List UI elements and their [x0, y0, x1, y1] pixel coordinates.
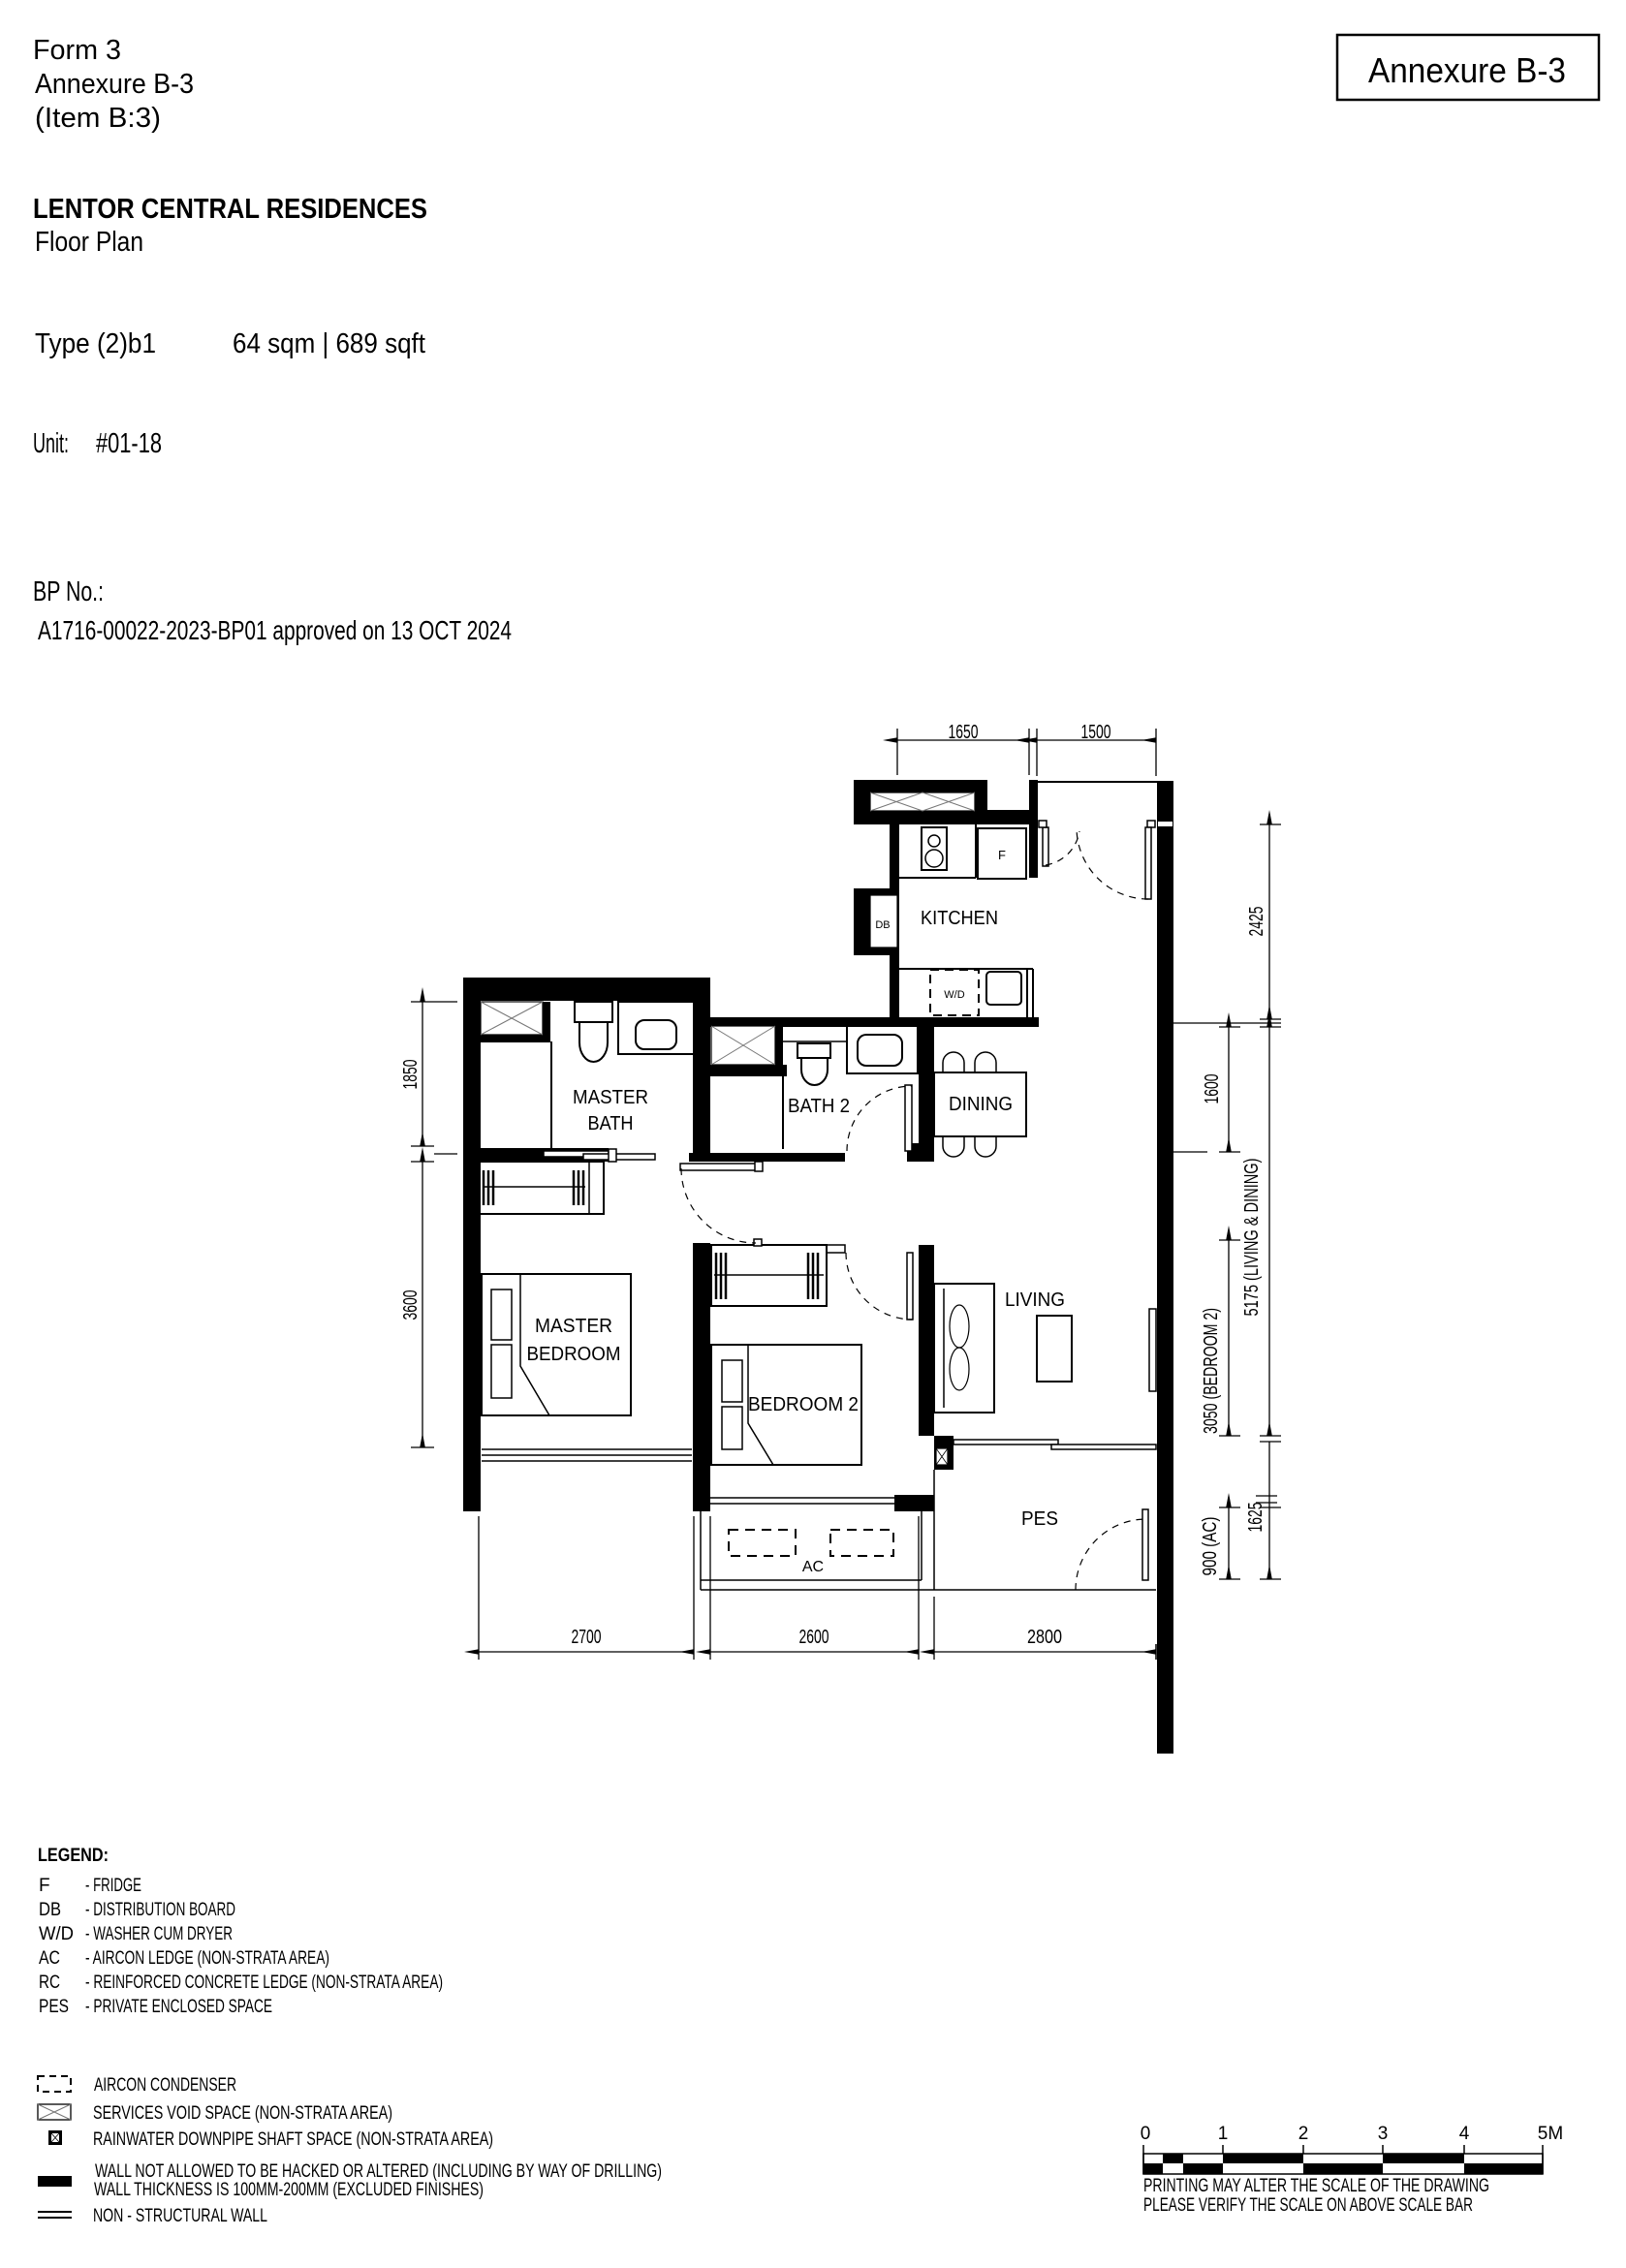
svg-text:MASTER: MASTER	[573, 1087, 648, 1108]
svg-text:2700: 2700	[572, 1627, 602, 1648]
svg-text:900 (AC): 900 (AC)	[1200, 1517, 1221, 1576]
svg-text:LIVING: LIVING	[1005, 1289, 1065, 1311]
svg-text:DINING: DINING	[949, 1094, 1013, 1115]
svg-text:WALL NOT ALLOWED TO BE HACKED: WALL NOT ALLOWED TO BE HACKED OR ALTERED…	[95, 2161, 662, 2182]
svg-text:5M: 5M	[1538, 2124, 1563, 2144]
svg-text:0: 0	[1141, 2124, 1151, 2144]
svg-text:- FRIDGE: - FRIDGE	[85, 1876, 141, 1896]
svg-text:- DISTRIBUTION BOARD: - DISTRIBUTION BOARD	[85, 1900, 235, 1920]
svg-text:(Item B:3): (Item B:3)	[35, 103, 161, 134]
svg-text:1650: 1650	[949, 722, 979, 743]
svg-text:PES: PES	[39, 1997, 69, 2017]
svg-text:WALL THICKNESS IS 100MM-200MM: WALL THICKNESS IS 100MM-200MM (EXCLUDED …	[94, 2180, 484, 2200]
svg-text:Type (2)b1: Type (2)b1	[35, 328, 156, 359]
svg-text:LEGEND:: LEGEND:	[38, 1846, 109, 1866]
svg-text:KITCHEN: KITCHEN	[921, 908, 998, 929]
svg-text:- REINFORCED CONCRETE LEDGE (N: - REINFORCED CONCRETE LEDGE (NON-STRATA …	[85, 1973, 443, 1993]
svg-text:- AIRCON LEDGE (NON-STRATA ARE: - AIRCON LEDGE (NON-STRATA AREA)	[85, 1948, 329, 1969]
svg-text:F: F	[998, 848, 1006, 862]
svg-text:Unit:: Unit:	[33, 428, 69, 459]
svg-text:Annexure B-3: Annexure B-3	[35, 69, 194, 100]
svg-text:DB: DB	[875, 919, 890, 931]
svg-text:64 sqm | 689 sqft: 64 sqm | 689 sqft	[233, 328, 425, 359]
svg-text:W/D: W/D	[39, 1924, 74, 1944]
svg-text:RC: RC	[39, 1973, 60, 1993]
svg-text:3600: 3600	[400, 1290, 422, 1320]
svg-text:4: 4	[1459, 2124, 1470, 2144]
svg-text:PLEASE VERIFY THE SCALE ON ABO: PLEASE VERIFY THE SCALE ON ABOVE SCALE B…	[1143, 2195, 1473, 2216]
svg-text:LENTOR CENTRAL RESIDENCES: LENTOR CENTRAL RESIDENCES	[33, 194, 427, 225]
svg-text:Form 3: Form 3	[33, 35, 121, 66]
svg-text:BEDROOM: BEDROOM	[527, 1344, 621, 1365]
svg-text:RAINWATER DOWNPIPE SHAFT SPACE: RAINWATER DOWNPIPE SHAFT SPACE (NON-STRA…	[93, 2129, 493, 2150]
svg-text:PES: PES	[1021, 1508, 1058, 1530]
svg-text:BATH: BATH	[588, 1113, 634, 1134]
svg-text:1: 1	[1218, 2124, 1229, 2144]
svg-text:1850: 1850	[400, 1060, 422, 1090]
svg-text:5175 (LIVING & DINING): 5175 (LIVING & DINING)	[1241, 1159, 1263, 1317]
svg-text:BP No.:: BP No.:	[33, 576, 104, 607]
svg-text:2600: 2600	[799, 1627, 829, 1648]
svg-text:Floor Plan: Floor Plan	[35, 227, 143, 258]
svg-text:NON - STRUCTURAL WALL: NON - STRUCTURAL WALL	[93, 2206, 267, 2226]
svg-text:1600: 1600	[1202, 1074, 1223, 1104]
svg-text:3050 (BEDROOM 2): 3050 (BEDROOM 2)	[1201, 1308, 1222, 1434]
svg-text:DB: DB	[39, 1900, 61, 1920]
svg-text:#01-18: #01-18	[96, 428, 162, 459]
svg-text:F: F	[39, 1876, 50, 1896]
svg-text:BEDROOM 2: BEDROOM 2	[748, 1394, 859, 1415]
svg-text:AC: AC	[39, 1948, 60, 1969]
svg-text:3: 3	[1378, 2124, 1389, 2144]
svg-text:Annexure B-3: Annexure B-3	[1368, 50, 1566, 90]
svg-text:MASTER: MASTER	[535, 1316, 612, 1337]
svg-text:A1716-00022-2023-BP01 approved: A1716-00022-2023-BP01 approved on 13 OCT…	[38, 615, 512, 645]
svg-text:2: 2	[1298, 2124, 1309, 2144]
svg-text:1625: 1625	[1245, 1503, 1266, 1533]
svg-text:W/D: W/D	[944, 989, 964, 1001]
svg-text:- PRIVATE ENCLOSED SPACE: - PRIVATE ENCLOSED SPACE	[85, 1997, 272, 2017]
svg-text:BATH 2: BATH 2	[788, 1096, 850, 1117]
svg-text:2800: 2800	[1027, 1627, 1062, 1648]
svg-text:AIRCON CONDENSER: AIRCON CONDENSER	[94, 2075, 236, 2096]
svg-text:PRINTING MAY ALTER THE SCALE O: PRINTING MAY ALTER THE SCALE OF THE DRAW…	[1143, 2176, 1489, 2196]
svg-text:2425: 2425	[1246, 907, 1267, 937]
svg-text:1500: 1500	[1081, 722, 1111, 743]
svg-text:- WASHER CUM DRYER: - WASHER CUM DRYER	[85, 1924, 233, 1944]
svg-text:SERVICES VOID SPACE (NON-STRAT: SERVICES VOID SPACE (NON-STRATA AREA)	[93, 2103, 392, 2124]
svg-text:AC: AC	[802, 1559, 824, 1575]
